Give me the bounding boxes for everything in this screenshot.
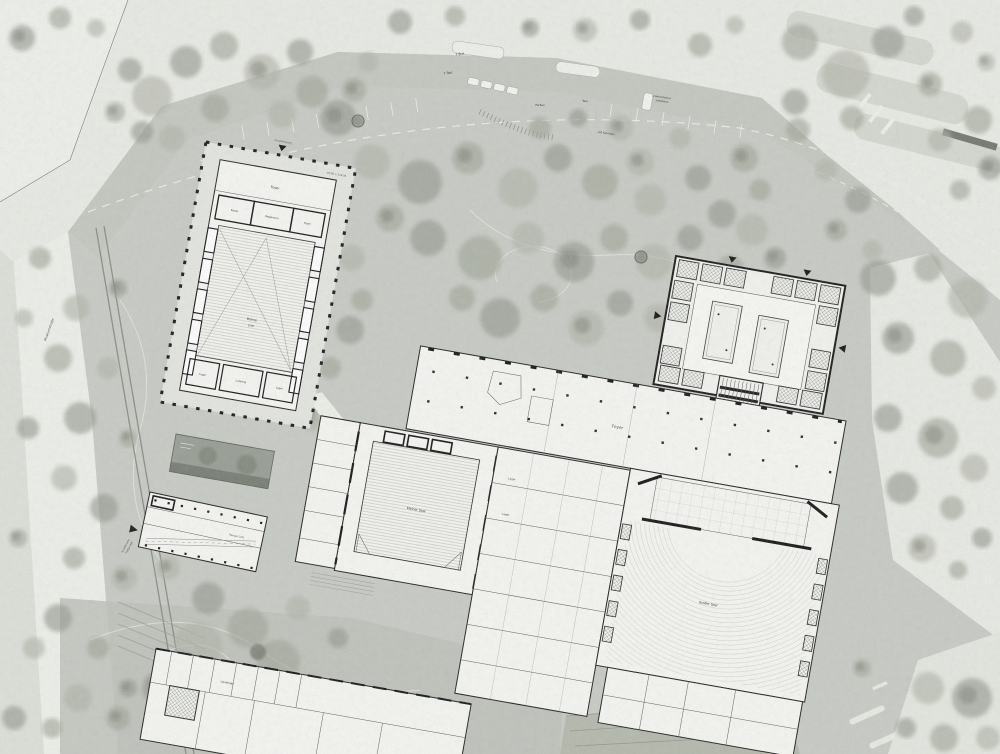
- site-plan: Foyer Kasse Regieraum Foyer Bühne 1500 L…: [0, 0, 1000, 754]
- noise-overlay-coarse: [0, 0, 1000, 754]
- site-plan-svg: Foyer Kasse Regieraum Foyer Bühne 1500 L…: [0, 0, 1000, 754]
